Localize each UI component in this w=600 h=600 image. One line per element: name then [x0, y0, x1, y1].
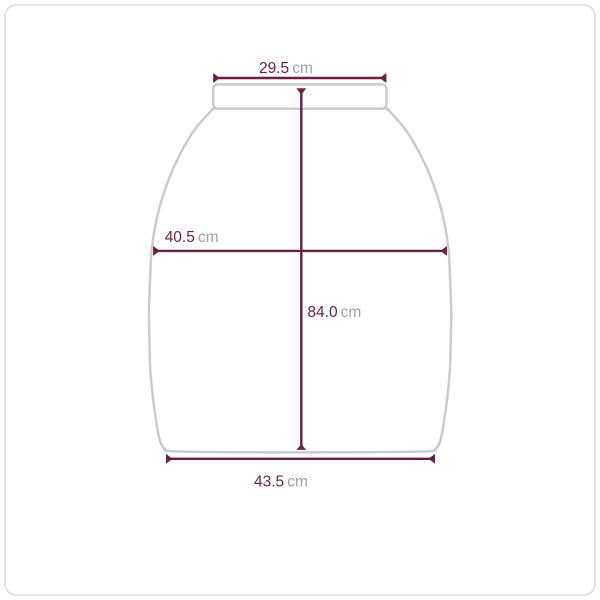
svg-text:43.5 cm: 43.5 cm [254, 474, 308, 491]
svg-text:84.0 cm: 84.0 cm [307, 304, 361, 321]
svg-text:40.5 cm: 40.5 cm [165, 229, 219, 246]
svg-text:29.5 cm: 29.5 cm [259, 60, 313, 77]
